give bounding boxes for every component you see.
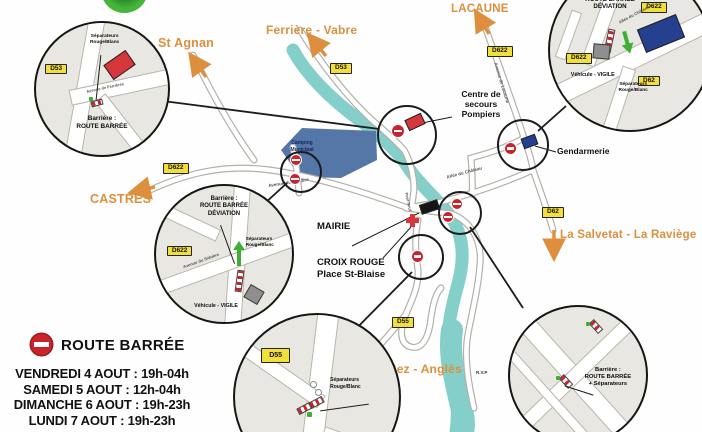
road-sign-d53: D53 — [330, 63, 352, 74]
inset-se-caption: Barrière : ROUTE BARRÉE + Séparateurs — [574, 367, 642, 389]
schedule-line: LUNDI 7 AOUT : 19h-23h — [0, 413, 206, 429]
inset-sign-d53: D53 — [45, 64, 67, 75]
label-gendarmerie: Gendarmerie — [557, 146, 609, 156]
inset-w-vehicle-label: Véhicule - VIGILE — [194, 303, 238, 310]
no-entry-icon — [392, 125, 404, 137]
direction-lacaune: LACAUNE — [451, 3, 509, 15]
road-sign-d622-west: D622 — [163, 163, 189, 174]
closure-spot-camping — [280, 151, 322, 193]
inset-w-separators-label: Séparateurs Rouge/Blanc — [246, 236, 274, 247]
inset-w-deviation: Barrière : ROUTE BARRÉE DÉVIATION D622 A… — [154, 184, 294, 324]
label-mairie: MAIRIE — [317, 221, 350, 232]
no-entry-icon — [505, 143, 516, 154]
closure-schedule: VENDREDI 4 AOUT : 19h-04h SAMEDI 5 AOUT … — [0, 366, 206, 428]
no-entry-icon — [291, 155, 301, 165]
road-sign-d622-north: D622 — [487, 46, 513, 57]
vigile-vehicle — [243, 284, 264, 305]
inset-s-separators-label: Séparateurs Rouge/Blanc — [330, 377, 361, 390]
inset-sign-d622: D622 — [167, 246, 193, 257]
green-arrow-up — [232, 240, 246, 268]
direction-castres: CASTRES — [90, 192, 151, 206]
schedule-line: SAMEDI 5 AOUT : 12h-04h — [0, 382, 206, 398]
separator-barrier — [589, 319, 604, 334]
vigile-vehicle — [593, 43, 611, 59]
label-camping: Camping Municipal — [276, 140, 328, 153]
schedule-line: DIMANCHE 6 AOUT : 19h-23h — [0, 397, 206, 413]
no-entry-icon — [452, 199, 462, 209]
road-sign-d62: D62 — [542, 207, 564, 218]
inset-ne-vehicle-label: Véhicule - VIGILE — [571, 72, 615, 79]
inset-w-caption: Barrière : ROUTE BARRÉE DÉVIATION — [176, 196, 271, 219]
inset-red-building — [103, 50, 135, 80]
route-barree-legend-icon — [31, 334, 52, 355]
no-entry-icon — [290, 174, 300, 184]
schedule-line: VENDREDI 4 AOUT : 19h-04h — [0, 366, 206, 382]
direction-st-agnan: St Agnan — [158, 36, 214, 50]
label-croix-rouge: CROIX ROUGE Place St-Blaise — [317, 257, 385, 282]
direction-la-salvetat: La Salvetat - La Raviège — [560, 229, 696, 241]
direction-ferriere-vabre: Ferrière - Vabre — [266, 23, 357, 37]
label-pompiers: Centre de secours Pompiers — [430, 89, 532, 120]
legend-title: ROUTE BARRÉE — [61, 337, 185, 354]
no-entry-icon — [443, 212, 453, 222]
inset-nw-separators-label: Séparateurs Rouge/Blanc — [76, 34, 134, 46]
road-sign-d55: D55 — [392, 317, 414, 328]
red-cross-icon — [406, 214, 419, 227]
inset-nw-caption: Barrière : ROUTE BARRÉE — [49, 115, 155, 131]
closure-spot-pompiers — [377, 105, 437, 165]
inset-sign-d55: D55 — [261, 348, 290, 363]
inset-ne-separators-label: Séparateurs Rouge/Blanc — [608, 82, 659, 94]
map-canvas: St Agnan Ferrière - Vabre LACAUNE CASTRE… — [0, 0, 702, 432]
inset-nw-route-barree: D53 Séparateurs Rouge/Blanc Avenue de Fe… — [34, 21, 170, 157]
inset-sign-d622-left: D622 — [566, 53, 592, 64]
no-entry-icon — [412, 251, 423, 262]
inset-se-barriere: Barrière : ROUTE BARRÉE + Séparateurs — [508, 305, 648, 432]
label-rvp: R.V.P — [476, 370, 487, 375]
